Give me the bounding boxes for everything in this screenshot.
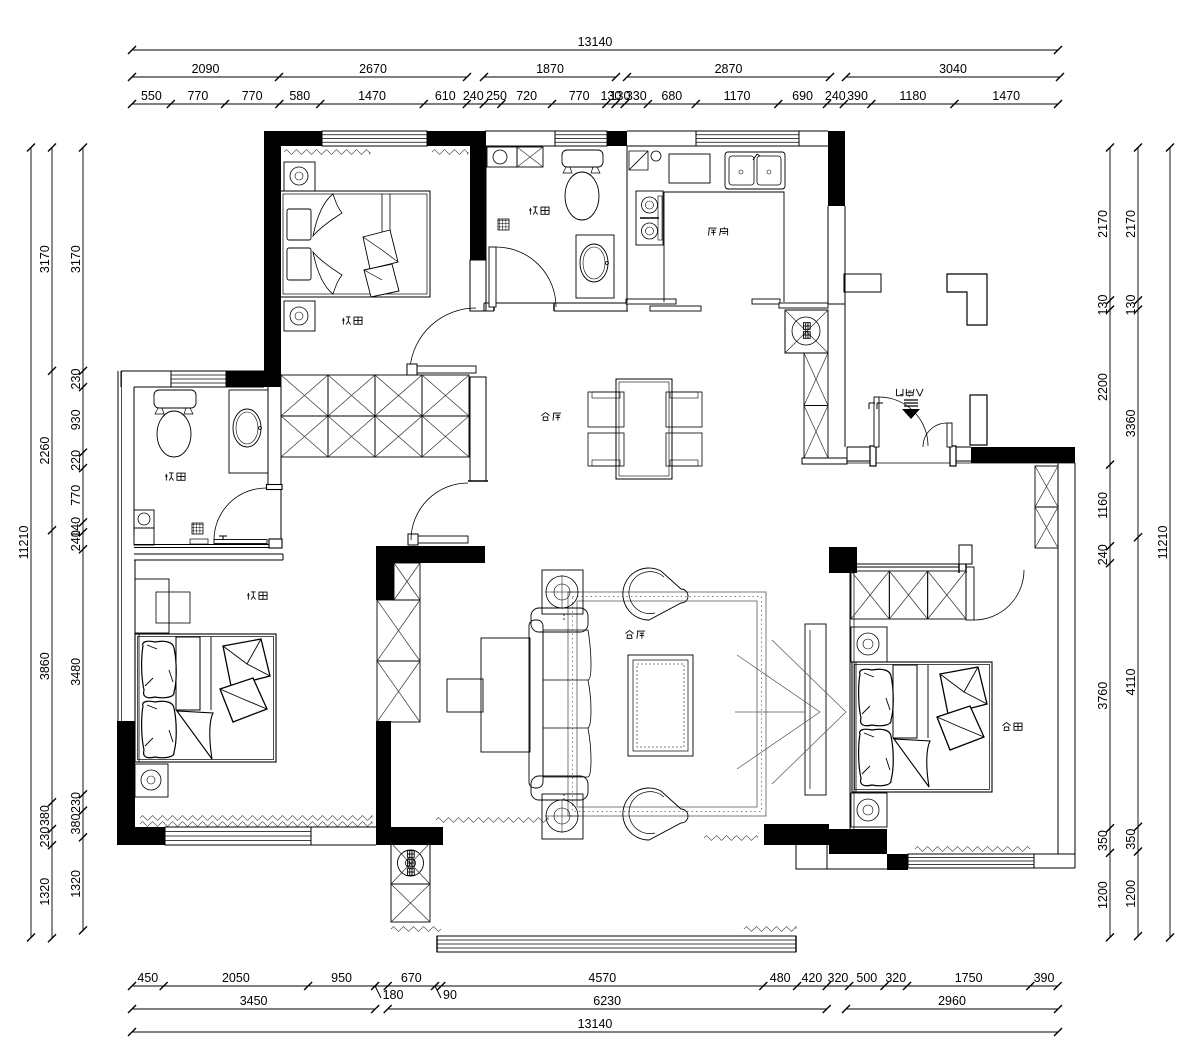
svg-text:550: 550 <box>141 89 162 103</box>
svg-text:11210: 11210 <box>17 526 31 560</box>
svg-text:680: 680 <box>661 89 682 103</box>
svg-text:230: 230 <box>69 792 83 813</box>
svg-text:2200: 2200 <box>1096 373 1110 401</box>
svg-text:320: 320 <box>885 971 906 985</box>
svg-text:230: 230 <box>69 369 83 390</box>
svg-text:130: 130 <box>1096 295 1110 316</box>
svg-text:90: 90 <box>443 988 457 1002</box>
svg-text:130: 130 <box>1124 295 1138 316</box>
svg-text:1200: 1200 <box>1096 881 1110 909</box>
svg-text:320: 320 <box>828 971 849 985</box>
svg-text:6230: 6230 <box>593 994 621 1008</box>
svg-text:3040: 3040 <box>939 62 967 76</box>
svg-text:350: 350 <box>1124 829 1138 850</box>
svg-text:240: 240 <box>69 530 83 551</box>
svg-text:770: 770 <box>569 89 590 103</box>
svg-text:690: 690 <box>792 89 813 103</box>
svg-text:770: 770 <box>187 89 208 103</box>
svg-text:2870: 2870 <box>715 62 743 76</box>
svg-text:950: 950 <box>331 971 352 985</box>
svg-text:4110: 4110 <box>1124 669 1138 696</box>
svg-text:13140: 13140 <box>578 35 613 49</box>
svg-text:180: 180 <box>383 988 404 1002</box>
svg-text:1870: 1870 <box>536 62 564 76</box>
svg-text:2050: 2050 <box>222 971 250 985</box>
svg-text:1160: 1160 <box>1096 492 1110 519</box>
svg-text:2960: 2960 <box>938 994 966 1008</box>
svg-text:3860: 3860 <box>38 652 52 680</box>
svg-text:11210: 11210 <box>1156 526 1170 560</box>
svg-text:2090: 2090 <box>192 62 220 76</box>
svg-text:13140: 13140 <box>578 1017 613 1031</box>
svg-text:2170: 2170 <box>1096 210 1110 238</box>
svg-text:390: 390 <box>1034 971 1055 985</box>
svg-text:1170: 1170 <box>724 89 751 103</box>
svg-text:390: 390 <box>847 89 868 103</box>
svg-text:930: 930 <box>69 409 83 430</box>
svg-text:610: 610 <box>435 89 456 103</box>
svg-text:1470: 1470 <box>992 89 1020 103</box>
svg-text:770: 770 <box>242 89 263 103</box>
svg-text:1320: 1320 <box>69 870 83 898</box>
svg-text:2670: 2670 <box>359 62 387 76</box>
svg-text:1750: 1750 <box>955 971 983 985</box>
svg-text:670: 670 <box>401 971 422 985</box>
svg-text:1180: 1180 <box>899 89 926 103</box>
svg-text:230: 230 <box>38 827 52 848</box>
svg-text:380: 380 <box>38 805 52 826</box>
svg-text:3360: 3360 <box>1124 409 1138 437</box>
svg-text:380: 380 <box>69 814 83 835</box>
svg-text:3170: 3170 <box>69 245 83 273</box>
svg-text:350: 350 <box>1096 830 1110 851</box>
svg-text:220: 220 <box>69 450 83 471</box>
svg-text:3480: 3480 <box>69 658 83 686</box>
svg-text:770: 770 <box>69 485 83 506</box>
svg-text:1200: 1200 <box>1124 880 1138 908</box>
svg-text:2170: 2170 <box>1124 210 1138 238</box>
svg-text:580: 580 <box>289 89 310 103</box>
svg-text:480: 480 <box>770 971 791 985</box>
svg-text:720: 720 <box>516 89 537 103</box>
svg-text:330: 330 <box>626 89 647 103</box>
svg-text:3170: 3170 <box>38 245 52 273</box>
svg-text:4570: 4570 <box>588 971 616 985</box>
svg-text:500: 500 <box>856 971 877 985</box>
svg-text:420: 420 <box>801 971 822 985</box>
svg-text:3450: 3450 <box>240 994 268 1008</box>
svg-text:240: 240 <box>463 89 484 103</box>
svg-text:240: 240 <box>825 89 846 103</box>
svg-text:3760: 3760 <box>1096 682 1110 710</box>
svg-text:1320: 1320 <box>38 878 52 906</box>
svg-text:240: 240 <box>1096 544 1110 565</box>
svg-text:1470: 1470 <box>358 89 386 103</box>
svg-text:450: 450 <box>137 971 158 985</box>
svg-text:2260: 2260 <box>38 437 52 465</box>
svg-text:250: 250 <box>486 89 507 103</box>
